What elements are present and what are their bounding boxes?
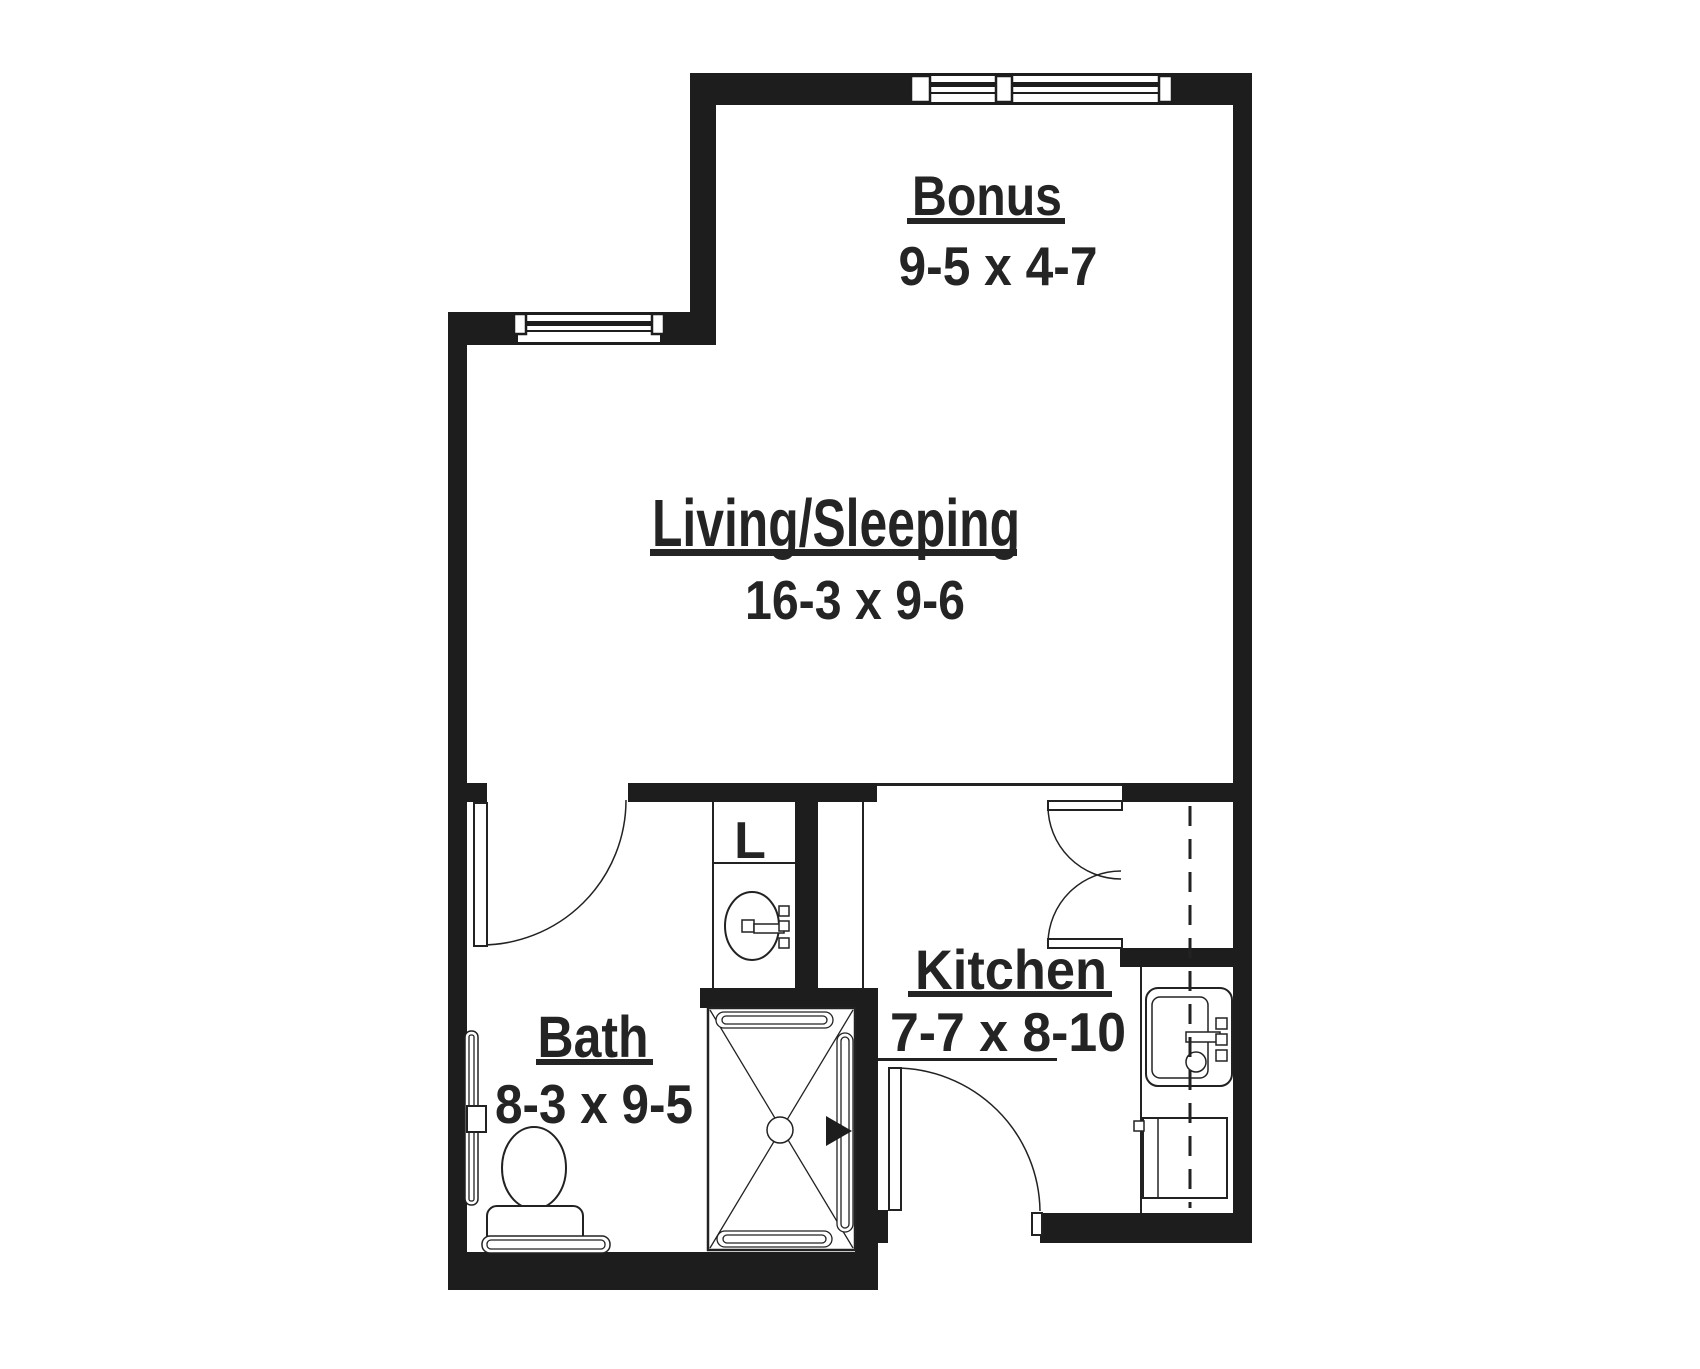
kitchen-faucet-handle	[1216, 1034, 1227, 1045]
bath-faucet-handle	[779, 906, 789, 916]
room-dims-bath: 8-3 x 9-5	[495, 1073, 693, 1135]
window-glazing	[518, 321, 660, 326]
floor-plan-page: Bonus 9-5 x 4-7 Living/Sleeping 16-3 x 9…	[0, 0, 1700, 1369]
kitchen-range	[1134, 1118, 1227, 1198]
wall-segment	[467, 783, 487, 802]
label-underline	[908, 991, 1112, 997]
range-body	[1143, 1118, 1227, 1198]
room-dims-bonus: 9-5 x 4-7	[899, 235, 1098, 297]
wall-segment	[628, 783, 877, 802]
grab-bar-horizontal	[487, 1240, 605, 1249]
kitchen-faucet-handle	[1216, 1018, 1227, 1029]
floor-plan: Bonus 9-5 x 4-7 Living/Sleeping 16-3 x 9…	[0, 0, 1700, 1369]
wall-segment	[1233, 105, 1252, 1243]
chase-line	[862, 802, 864, 988]
window-glazing	[518, 342, 660, 345]
wall-segment	[660, 312, 716, 345]
range-handle	[1134, 1121, 1144, 1131]
door-strike-jamb	[1032, 1213, 1042, 1235]
bath-faucet-icon	[742, 920, 754, 932]
wall-segment	[690, 73, 716, 345]
bath-faucet-handle	[779, 921, 789, 931]
window-jamb	[514, 314, 526, 334]
room-label-bonus: Bonus	[912, 164, 1062, 227]
window-jamb	[652, 314, 664, 334]
wall-segment	[1120, 948, 1233, 967]
shower-drain	[767, 1117, 793, 1143]
wall-segment	[448, 312, 467, 1290]
shower-rim	[723, 1235, 826, 1243]
counter-edge-line	[1140, 967, 1142, 1213]
wall-segment	[795, 802, 818, 988]
passage-header-line	[877, 783, 1122, 786]
tp-holder	[467, 1106, 486, 1132]
label-underline	[907, 218, 1065, 224]
window-glazing	[930, 102, 1162, 105]
wall-segment	[855, 1210, 888, 1243]
window-glazing	[518, 330, 660, 332]
door-leaf	[474, 803, 487, 946]
label-underline	[536, 1059, 653, 1065]
window-glazing	[930, 92, 1162, 94]
window-jamb	[911, 76, 930, 102]
wall-segment	[690, 73, 930, 105]
toilet-bowl	[502, 1127, 566, 1209]
window-jamb	[1159, 76, 1172, 102]
room-dims-kitchen: 7-7 x 8-10	[890, 1001, 1126, 1063]
window-glazing	[930, 73, 1162, 76]
room-dims-living: 16-3 x 9-6	[745, 569, 965, 631]
kitchen-faucet-handle	[1216, 1050, 1227, 1061]
closet-label-linen: L	[734, 812, 766, 870]
wall-segment	[1162, 73, 1252, 105]
bath-faucet-handle	[779, 938, 789, 948]
window-glazing	[518, 312, 660, 315]
window-glazing	[930, 82, 1162, 87]
wall-segment	[700, 988, 878, 1008]
shower	[708, 1008, 855, 1250]
vanity-edge-line	[712, 802, 714, 988]
door-leaf	[1048, 801, 1122, 810]
wall-segment	[448, 1252, 878, 1290]
wall-segment	[1122, 783, 1252, 802]
wall-segment	[1040, 1213, 1252, 1243]
label-underline	[650, 549, 1017, 556]
window-mullion	[996, 76, 1012, 102]
door-leaf	[889, 1068, 901, 1210]
shower-rim	[722, 1016, 827, 1024]
